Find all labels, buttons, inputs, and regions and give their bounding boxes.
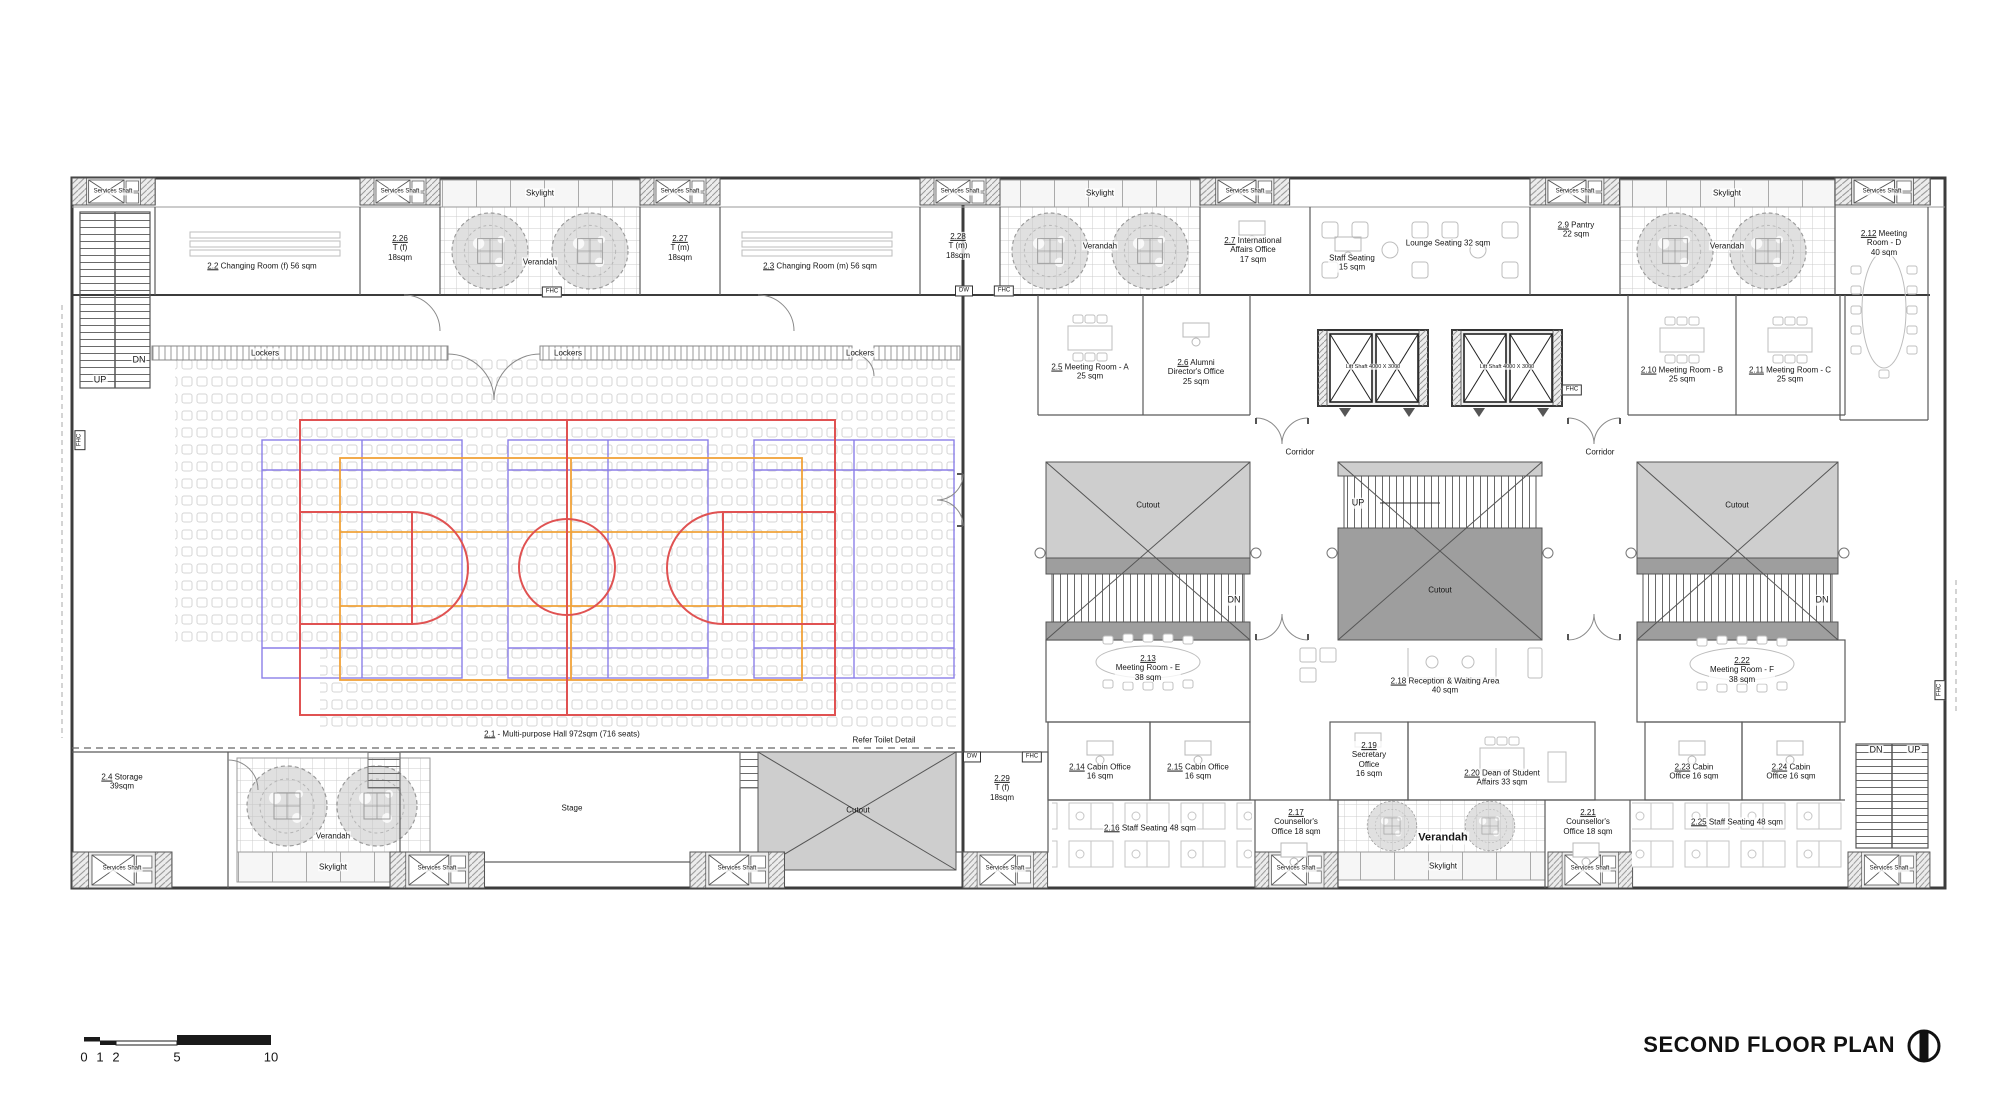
scale-bar [84, 1035, 271, 1045]
lockers-strips [152, 346, 960, 360]
plan-drawing [0, 0, 2000, 1107]
hall-seating-rows [175, 356, 956, 728]
atrium-right [1637, 462, 1838, 640]
north-section-icon [1909, 1031, 1939, 1061]
plan-title: SECOND FLOOR PLAN [1555, 1032, 1895, 1058]
bottom-cutout [758, 752, 956, 870]
atrium-mid [1338, 462, 1542, 640]
reception-furniture [1300, 648, 1542, 682]
lift-shafts [1318, 330, 1562, 417]
floor-plan-canvas: Services ShaftServices ShaftServices Sha… [0, 0, 2000, 1107]
atrium-left [1046, 462, 1250, 640]
